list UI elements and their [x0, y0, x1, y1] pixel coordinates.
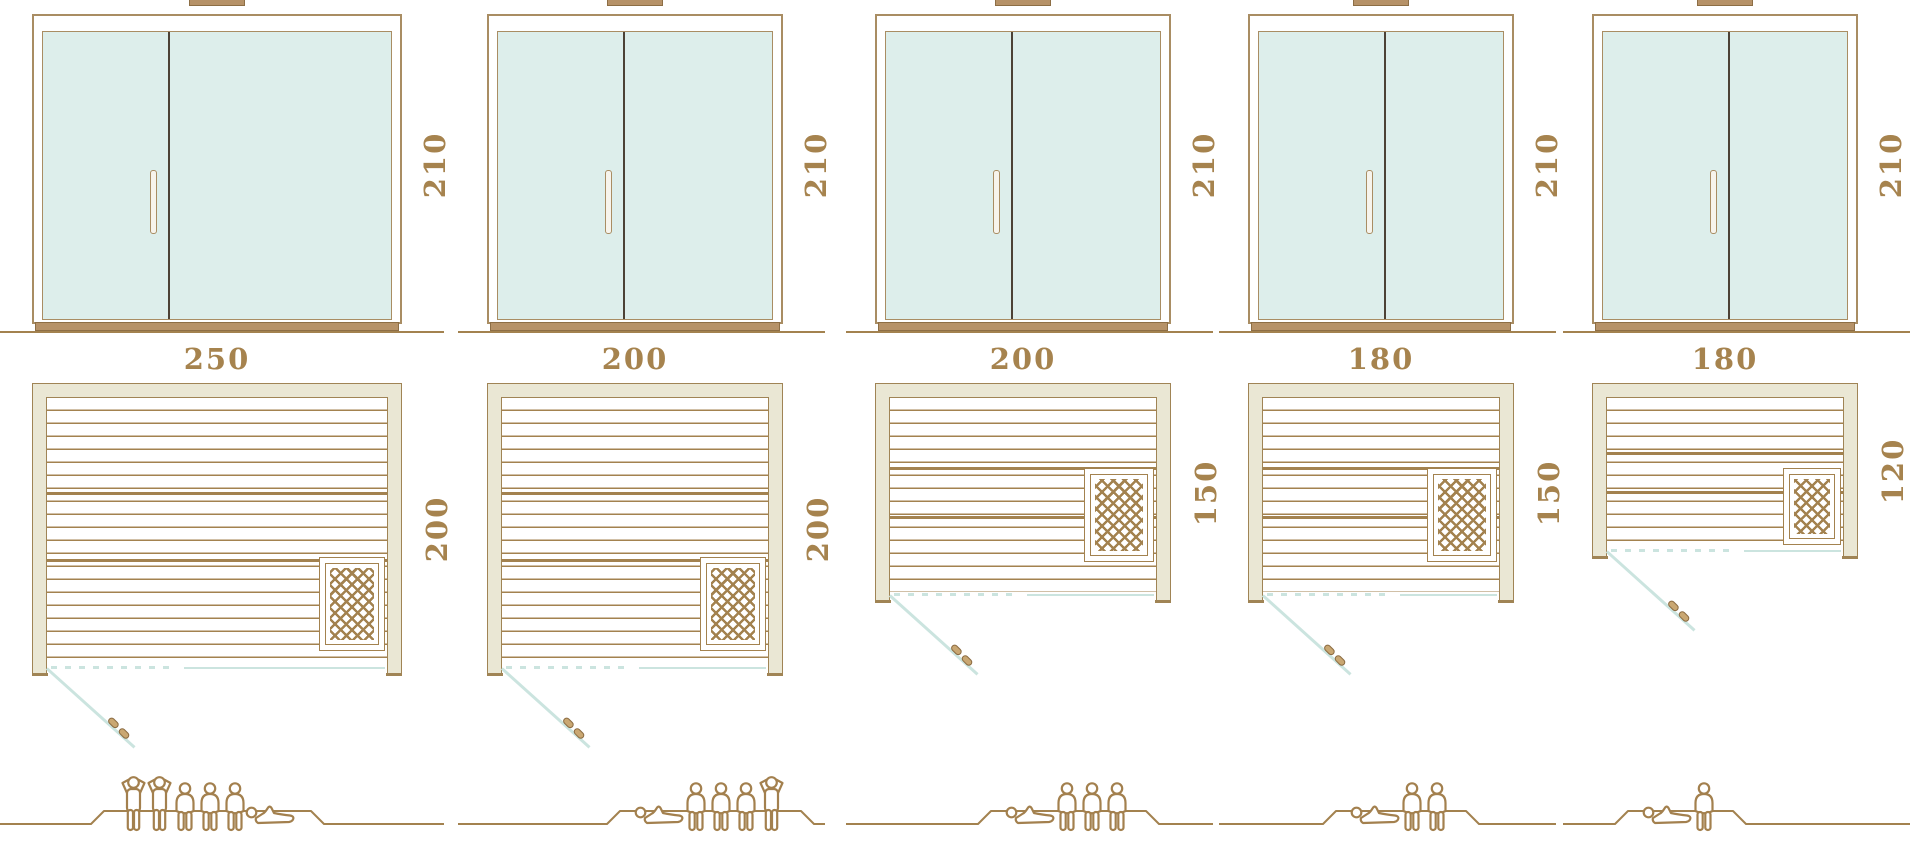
sauna-column-3-door-sill: [878, 322, 1168, 331]
heater: [319, 557, 385, 651]
heater: [1427, 468, 1497, 562]
sitting-person-icon: [1102, 782, 1132, 832]
door-handle-part: [1677, 610, 1690, 623]
door-handle: [993, 170, 1000, 234]
door-divider: [168, 32, 170, 319]
dimension-height-label: 210: [410, 140, 460, 190]
heater-frame: [325, 563, 379, 645]
door-handle-icon: [1319, 643, 1349, 673]
sauna-column-5-floor-plan: [1592, 383, 1858, 558]
door-handle-icon: [946, 643, 976, 673]
sauna-column-4-roof-cap: [1353, 0, 1409, 6]
dimension-depth-label: 150: [1181, 468, 1231, 518]
bench-edge-line: [502, 492, 768, 495]
sauna-column-5-ground-line: [1563, 331, 1910, 333]
sauna-heater-icon: [711, 568, 755, 640]
bench-slats: [1262, 397, 1500, 602]
wall-post-cap: [386, 673, 402, 676]
sauna-column-1-door-sill: [35, 322, 399, 331]
sauna-column-1-roof-cap: [189, 0, 245, 6]
wall-post-cap: [32, 673, 48, 676]
door-handle-part: [1333, 654, 1346, 667]
bench-slats: [1606, 397, 1844, 558]
heater-frame: [1789, 474, 1835, 539]
sauna-column-1-door-elevation: [32, 14, 402, 324]
dimension-depth-label: 200: [793, 504, 843, 554]
sauna-heater-icon: [1095, 479, 1143, 551]
door-handle-part: [117, 727, 130, 740]
dimension-width-label: 180: [1248, 342, 1514, 376]
glass-wall-line: [1027, 594, 1154, 597]
sauna-column-4-floor-plan: [1248, 383, 1514, 602]
door-opening-dashed-line: [51, 666, 176, 669]
bench-slats: [501, 397, 769, 675]
heater-frame: [1433, 474, 1491, 556]
sitting-person-icon: [1422, 782, 1452, 832]
door-handle-part: [960, 654, 973, 667]
sauna-column-4-door-elevation: [1248, 14, 1514, 324]
sauna-column-5-capacity-platform: [1563, 756, 1910, 836]
heater-frame: [1090, 474, 1148, 556]
lying-person-icon: [245, 799, 297, 832]
door-handle-part: [107, 716, 120, 729]
sauna-column-3-door-elevation: [875, 14, 1171, 324]
door-opening-dashed-line: [894, 593, 1019, 596]
door-handle-icon: [558, 716, 588, 746]
dimension-depth-label: 200: [412, 504, 462, 554]
heater: [700, 557, 766, 651]
sauna-heater-icon: [1794, 479, 1830, 534]
sauna-column-4-ground-line: [1219, 331, 1556, 333]
dimension-depth-label: 150: [1524, 468, 1574, 518]
sauna-column-2-door-elevation: [487, 14, 783, 324]
wall-post-cap: [1842, 556, 1858, 559]
door-divider: [1384, 32, 1386, 319]
door-handle-part: [1323, 643, 1336, 656]
door-handle-icon: [1663, 599, 1693, 629]
door-handle: [1710, 170, 1717, 234]
glass-wall-line: [639, 667, 766, 670]
wall-post-cap: [875, 600, 891, 603]
dimension-height-label: 210: [1522, 140, 1572, 190]
door-divider: [623, 32, 625, 319]
lying-person-icon: [1005, 799, 1057, 832]
dimension-height-label: 210: [791, 140, 841, 190]
lying-person-icon: [1350, 799, 1402, 832]
door-handle: [1366, 170, 1373, 234]
glass-panel: [1602, 31, 1848, 320]
door-opening-dashed-line: [506, 666, 631, 669]
door-handle-icon: [103, 716, 133, 746]
door-handle-part: [562, 716, 575, 729]
dimension-width-label: 200: [487, 342, 783, 376]
glass-panel: [497, 31, 773, 320]
sauna-column-3-ground-line: [846, 331, 1213, 333]
door-handle: [605, 170, 612, 234]
sauna-column-3-roof-cap: [995, 0, 1051, 6]
door-handle-part: [950, 643, 963, 656]
sauna-column-4-door-sill: [1251, 322, 1511, 331]
dimension-height-label: 210: [1866, 140, 1916, 190]
sauna-column-2-door-sill: [490, 322, 780, 331]
sauna-column-5-door-sill: [1595, 322, 1855, 331]
sauna-column-1-floor-plan: [32, 383, 402, 675]
sauna-column-1-ground-line: [0, 331, 444, 333]
dimension-width-label: 250: [32, 342, 402, 376]
door-opening-dashed-line: [1611, 549, 1736, 552]
wall-post-cap: [1498, 600, 1514, 603]
dimension-depth-label: 120: [1868, 446, 1918, 496]
sauna-column-2-roof-cap: [607, 0, 663, 6]
heater: [1783, 468, 1841, 545]
door-divider: [1728, 32, 1730, 319]
bench-edge-line: [47, 492, 387, 495]
sitting-person-icon: [1689, 782, 1719, 832]
bench-edge-line: [1607, 452, 1843, 455]
sauna-column-2-ground-line: [458, 331, 825, 333]
sauna-column-5-roof-cap: [1697, 0, 1753, 6]
wall-post-cap: [1155, 600, 1171, 603]
glass-wall-line: [184, 667, 385, 670]
standing-person-icon: [756, 775, 787, 832]
dimension-height-label: 210: [1179, 140, 1229, 190]
sauna-column-5-door-elevation: [1592, 14, 1858, 324]
sauna-heater-icon: [330, 568, 374, 640]
heater-frame: [706, 563, 760, 645]
door-handle-part: [572, 727, 585, 740]
dimension-width-label: 200: [875, 342, 1171, 376]
door-opening-dashed-line: [1267, 593, 1392, 596]
door-handle-part: [1667, 599, 1680, 612]
wall-post-cap: [1248, 600, 1264, 603]
sauna-size-diagram: 2102502002102002002102001502101801502101…: [0, 0, 1920, 856]
bench-slats: [889, 397, 1157, 602]
bench-slats: [46, 397, 388, 675]
glass-panel: [1258, 31, 1504, 320]
lying-person-icon: [1642, 799, 1694, 832]
door-divider: [1011, 32, 1013, 319]
glass-panel: [885, 31, 1161, 320]
sauna-heater-icon: [1438, 479, 1486, 551]
door-handle: [150, 170, 157, 234]
glass-wall-line: [1400, 594, 1497, 597]
glass-panel: [42, 31, 392, 320]
sauna-column-3-floor-plan: [875, 383, 1171, 602]
heater: [1084, 468, 1154, 562]
lying-person-icon: [634, 799, 686, 832]
wall-post-cap: [1592, 556, 1608, 559]
glass-wall-line: [1744, 550, 1841, 553]
wall-post-cap: [767, 673, 783, 676]
dimension-width-label: 180: [1592, 342, 1858, 376]
wall-post-cap: [487, 673, 503, 676]
sauna-column-2-floor-plan: [487, 383, 783, 675]
